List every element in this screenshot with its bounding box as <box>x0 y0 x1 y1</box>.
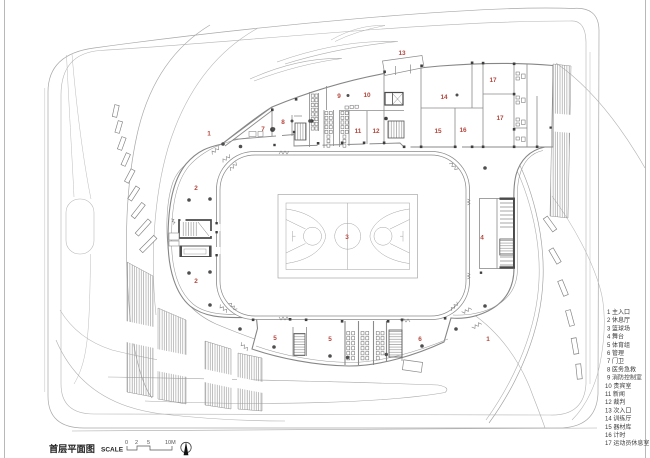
svg-text:12 裁判: 12 裁判 <box>605 398 625 406</box>
svg-text:9 消防控制室: 9 消防控制室 <box>607 374 642 382</box>
svg-text:8 医务急救: 8 医务急救 <box>607 365 636 373</box>
svg-text:9: 9 <box>337 93 341 100</box>
svg-text:10M: 10M <box>165 440 176 446</box>
svg-text:5: 5 <box>328 336 332 343</box>
svg-text:11 新闻: 11 新闻 <box>605 390 625 398</box>
svg-text:4 舞台: 4 舞台 <box>607 333 624 341</box>
svg-text:1: 1 <box>207 131 211 138</box>
svg-text:11: 11 <box>355 128 362 135</box>
svg-text:5 体育组: 5 体育组 <box>607 341 630 349</box>
svg-text:12: 12 <box>372 128 380 135</box>
svg-text:2 休息厅: 2 休息厅 <box>607 316 630 324</box>
svg-text:5: 5 <box>147 440 150 446</box>
svg-text:6 管理: 6 管理 <box>607 349 624 357</box>
svg-text:2: 2 <box>194 185 198 192</box>
svg-text:8: 8 <box>281 119 285 126</box>
svg-text:16: 16 <box>459 127 467 134</box>
svg-text:2: 2 <box>194 278 198 285</box>
svg-text:6: 6 <box>418 336 422 343</box>
svg-text:14 训练厅: 14 训练厅 <box>605 415 631 423</box>
svg-text:5: 5 <box>273 335 277 342</box>
svg-text:15 器材库: 15 器材库 <box>605 423 631 431</box>
svg-text:15: 15 <box>434 128 442 135</box>
svg-text:13: 13 <box>398 50 406 57</box>
svg-text:10 贵宾室: 10 贵宾室 <box>605 382 631 390</box>
svg-text:14: 14 <box>440 94 448 101</box>
svg-text:13 次入口: 13 次入口 <box>605 406 631 414</box>
svg-text:17: 17 <box>489 77 497 84</box>
svg-text:7: 7 <box>261 126 265 133</box>
svg-text:16 计时: 16 计时 <box>605 431 625 439</box>
svg-text:0: 0 <box>125 440 128 446</box>
svg-text:10: 10 <box>363 92 371 99</box>
svg-text:3: 3 <box>345 234 349 241</box>
svg-text:首层平面图: 首层平面图 <box>49 443 95 454</box>
svg-text:4: 4 <box>480 235 484 242</box>
svg-text:SCALE: SCALE <box>101 447 124 454</box>
svg-text:17 运动员休息室: 17 运动员休息室 <box>605 439 649 447</box>
svg-text:7 门卫: 7 门卫 <box>607 357 624 365</box>
svg-text:1 主入口: 1 主入口 <box>607 308 630 316</box>
svg-text:1: 1 <box>486 336 490 343</box>
svg-text:17: 17 <box>496 115 504 122</box>
svg-text:2: 2 <box>135 440 138 446</box>
svg-text:3 篮球场: 3 篮球场 <box>607 324 630 332</box>
